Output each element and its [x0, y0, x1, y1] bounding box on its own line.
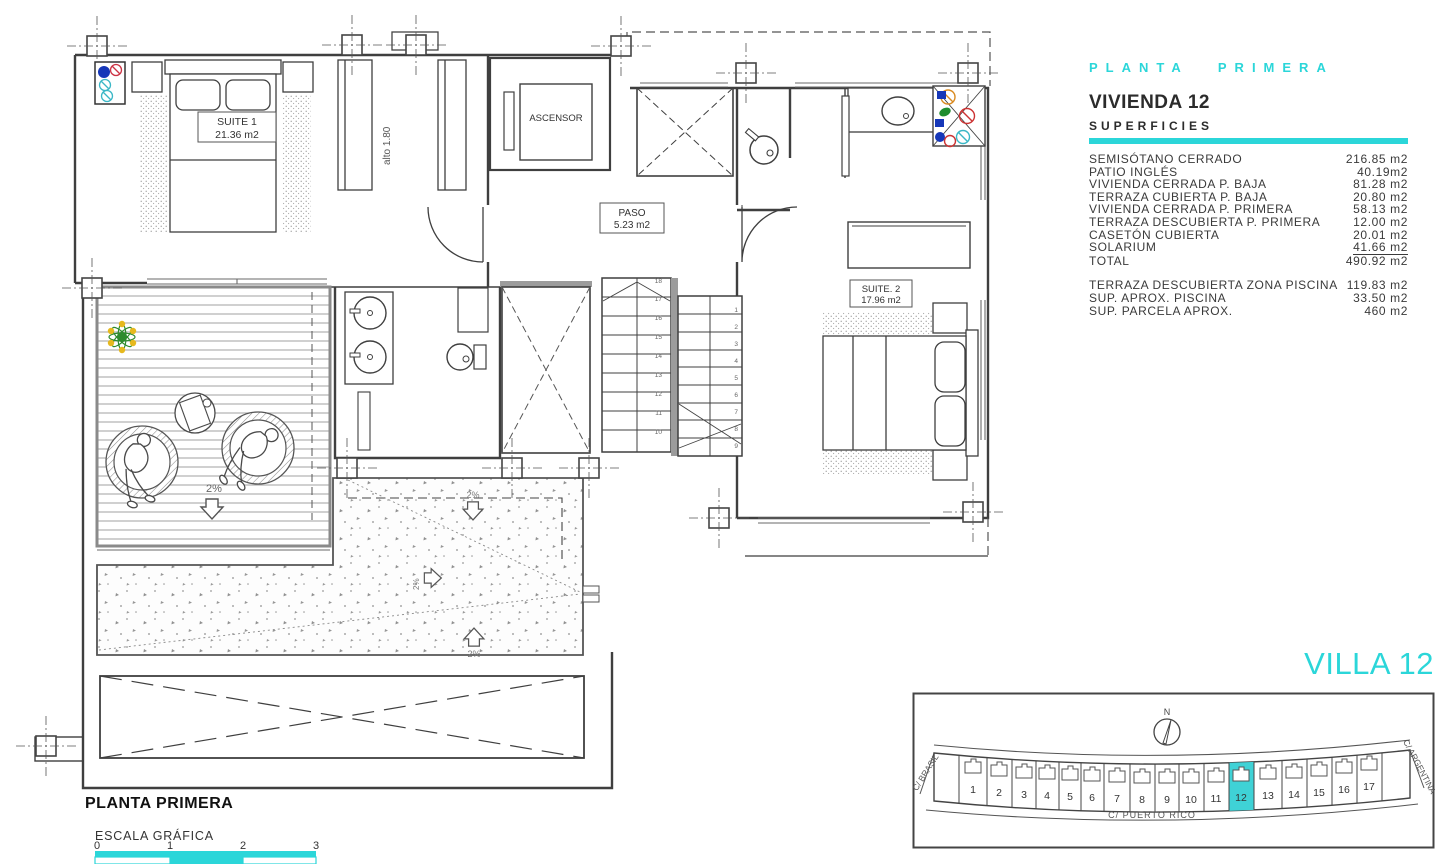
stair-num: 18	[655, 278, 663, 285]
stair-num: 13	[655, 372, 663, 379]
row-label: SUP. PARCELA APROX.	[1089, 305, 1233, 318]
row-value: 460 m2	[1364, 305, 1408, 318]
elevator: ASCENSOR	[490, 58, 610, 170]
plot-number: 4	[1044, 790, 1050, 802]
plot-number: 8	[1139, 794, 1145, 806]
table-row: TOTAL490.92 m2	[1089, 255, 1408, 268]
plot-number: 2	[996, 787, 1002, 799]
paso-name: PASO	[618, 208, 645, 219]
table-row: SUP. APROX. PISCINA33.50 m2	[1089, 292, 1408, 305]
stair-num: 1	[734, 307, 738, 314]
plot-number: 3	[1021, 789, 1027, 801]
plot-number: 9	[1164, 794, 1170, 806]
plan-footer: PLANTA PRIMERA ESCALA GRÁFICA 0 1 2 3	[85, 795, 319, 864]
suite1-name: SUITE 1	[217, 116, 257, 128]
table-row: VIVIENDA CERRADA P. BAJA81.28 m2	[1089, 178, 1408, 191]
stair-num: 8	[734, 426, 738, 433]
surface-table: SEMISÓTANO CERRADO216.85 m2 PATIO INGLÉS…	[1089, 153, 1408, 317]
carpet-right	[283, 95, 311, 233]
suite2-area: 17.96 m2	[861, 295, 901, 306]
plot-number: 7	[1114, 793, 1120, 805]
scale-tick: 3	[313, 840, 319, 852]
carpet	[823, 312, 933, 336]
stair-num: 6	[734, 392, 738, 399]
stair-divider-wall	[671, 278, 678, 456]
table-row: SEMISÓTANO CERRADO216.85 m2	[1089, 153, 1408, 166]
slope-label: 2%	[206, 483, 222, 495]
row-label: SEMISÓTANO CERRADO	[1089, 153, 1242, 166]
site-plan-svg: N 1 2 3 4 5 6 7 8 9 10 11 12 13 14 15 16…	[912, 692, 1435, 849]
scale-tick: 2	[240, 840, 246, 852]
carpet	[823, 448, 933, 474]
row-label: VIVIENDA CERRADA P. BAJA	[1089, 178, 1267, 191]
table-row: SOLARIUM41.66 m2	[1089, 241, 1408, 255]
panel-title: PLANTA PRIMERA	[1089, 60, 1408, 75]
suite2-label: SUITE. 2 17.96 m2	[850, 280, 912, 307]
stair-num: 11	[655, 410, 662, 417]
scale-tick: 0	[94, 840, 100, 852]
villa-heading: VILLA 12	[1304, 646, 1434, 682]
stair-num: 3	[734, 341, 738, 348]
suite1-room: SUITE 1 21.36 m2 alto 1.80	[132, 60, 466, 233]
slope-label: 2%	[412, 578, 421, 590]
superficies-label: SUPERFICIES	[1089, 119, 1408, 133]
skylight-void	[637, 88, 733, 176]
staircase: 18 17 16 15 14 13 12 11 10 1 2 3 4 5 6 7…	[602, 278, 742, 456]
floor-plan-svg: SUITE 1 21.36 m2 alto 1.80 ASCENSOR PASO…	[0, 0, 1010, 864]
paso-label: PASO 5.23 m2	[600, 203, 664, 233]
row-value: 12.00 m2	[1353, 216, 1408, 229]
compass-n: N	[1164, 707, 1171, 717]
plot-number: 6	[1089, 792, 1095, 804]
plot-number: 1	[970, 784, 976, 796]
wc-toilet	[745, 129, 778, 164]
suite2-wardrobe	[848, 222, 970, 268]
suite2-bath	[842, 88, 936, 176]
row-value: 216.85 m2	[1346, 153, 1408, 166]
plot-number: 13	[1262, 790, 1274, 802]
suite2-shower	[933, 86, 985, 147]
coffee-table	[175, 393, 215, 433]
row-value: 33.50 m2	[1353, 292, 1408, 305]
stair-num: 14	[655, 353, 663, 360]
stair-num: 5	[734, 375, 738, 382]
drain-icon	[583, 586, 599, 602]
carpet-left	[140, 95, 168, 233]
info-panel: PLANTA PRIMERA VIVIENDA 12 SUPERFICIES S…	[1089, 60, 1408, 317]
stair-num: 15	[655, 334, 663, 341]
ascensor-label: ASCENSOR	[529, 113, 582, 124]
scale-tick: 1	[167, 840, 173, 852]
alto-label: alto 1.80	[382, 126, 393, 165]
suite2-name: SUITE. 2	[862, 284, 901, 295]
plot-number: 17	[1363, 781, 1375, 793]
plot-number: 16	[1338, 784, 1350, 796]
terrace-deck: 2%	[97, 287, 330, 546]
slope-label: 2%	[466, 490, 479, 500]
stair-num: 7	[734, 409, 738, 416]
plot-number: 12	[1235, 792, 1247, 804]
pool-void	[35, 676, 584, 761]
shower-void	[500, 281, 592, 453]
cyan-divider	[1089, 138, 1408, 144]
slope-label: 2%	[467, 649, 480, 659]
paso-area: 5.23 m2	[614, 220, 651, 231]
suite1-area: 21.36 m2	[215, 129, 259, 141]
main-bathroom	[345, 288, 488, 450]
vivienda-title: VIVIENDA 12	[1089, 92, 1408, 114]
suite1-label: SUITE 1 21.36 m2	[198, 112, 276, 142]
suite2-room: SUITE. 2 17.96 m2	[823, 86, 985, 480]
table-row: TERRAZA DESCUBIERTA P. PRIMERA12.00 m2	[1089, 216, 1408, 229]
stair-num: 10	[655, 429, 663, 436]
plot-number: 5	[1067, 791, 1073, 803]
row-value: 490.92 m2	[1346, 255, 1408, 268]
stair-num: 16	[655, 315, 663, 322]
stair-num: 9	[734, 443, 738, 450]
plot-number: 14	[1288, 789, 1300, 801]
plot-number: 15	[1313, 787, 1325, 799]
stair-num: 4	[734, 358, 738, 365]
wardrobes	[338, 60, 466, 190]
stair-num: 2	[734, 324, 738, 331]
row-label: SOLARIUM	[1089, 241, 1156, 255]
table-row: SUP. PARCELA APROX.460 m2	[1089, 305, 1408, 318]
row-value-underlined: 41.66 m2	[1353, 241, 1408, 255]
row-value: 81.28 m2	[1353, 178, 1408, 191]
hvac-symbols-icon	[95, 62, 125, 104]
toilet-icon	[447, 344, 473, 370]
stair-num: 12	[655, 391, 663, 398]
plot-number: 10	[1185, 794, 1197, 806]
scale-label: ESCALA GRÁFICA	[95, 828, 214, 843]
street-puerto-rico: C/ PUERTO RICO	[1108, 810, 1196, 820]
scale-bar	[95, 851, 316, 864]
stair-num: 17	[655, 296, 663, 303]
plan-title: PLANTA PRIMERA	[85, 795, 233, 812]
row-label: TOTAL	[1089, 255, 1130, 268]
row-label: TERRAZA DESCUBIERTA P. PRIMERA	[1089, 216, 1320, 229]
row-label: SUP. APROX. PISCINA	[1089, 292, 1226, 305]
plot-number: 11	[1211, 793, 1222, 805]
